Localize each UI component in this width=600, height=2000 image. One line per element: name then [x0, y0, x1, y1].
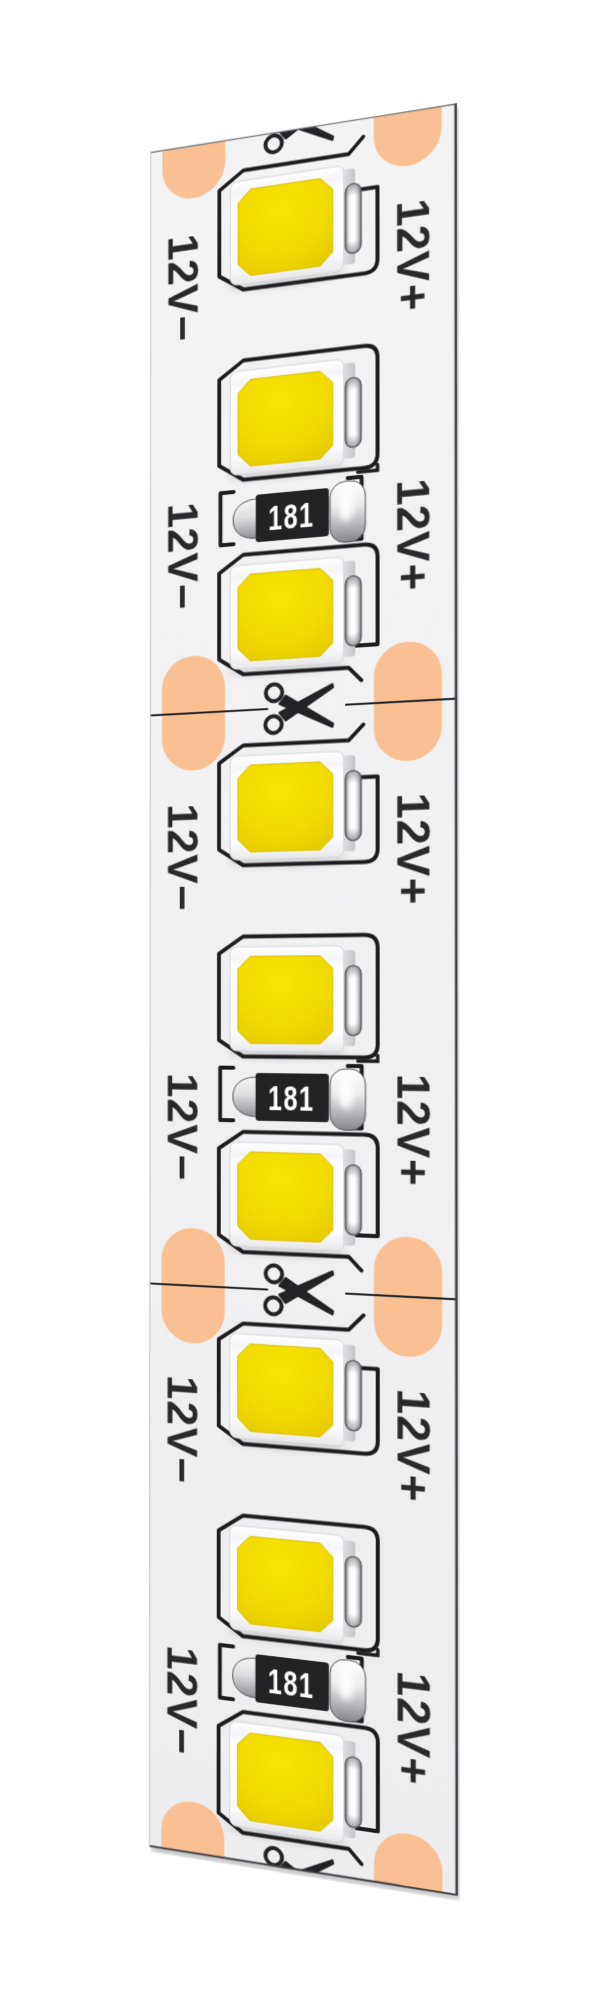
svg-text:12V+: 12V+	[387, 1669, 440, 1789]
svg-text:181: 181	[268, 1079, 314, 1120]
svg-text:12V−: 12V−	[158, 500, 206, 612]
svg-text:12V+: 12V+	[386, 196, 438, 315]
svg-text:12V+: 12V+	[387, 1388, 440, 1505]
svg-text:181: 181	[268, 495, 314, 539]
svg-text:12V+: 12V+	[387, 1074, 440, 1188]
svg-text:12V−: 12V−	[158, 1374, 206, 1486]
svg-text:12V−: 12V−	[158, 1073, 206, 1182]
svg-text:12V−: 12V−	[158, 803, 206, 912]
svg-text:12V+: 12V+	[386, 477, 438, 594]
svg-text:12V−: 12V−	[158, 231, 206, 345]
svg-text:12V−: 12V−	[157, 1643, 205, 1758]
svg-text:12V+: 12V+	[387, 792, 439, 906]
svg-text:181: 181	[268, 1661, 315, 1707]
